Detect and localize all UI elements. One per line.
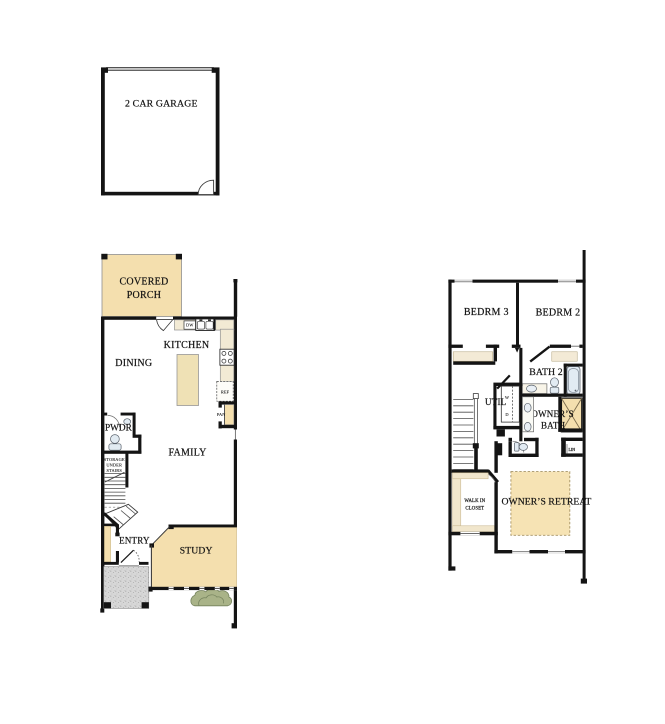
svg-text:OWNER’S: OWNER’S [531, 409, 573, 419]
svg-text:BATH: BATH [541, 420, 566, 430]
svg-text:FAMILY: FAMILY [168, 447, 206, 458]
svg-text:LIN: LIN [569, 448, 576, 452]
svg-text:KITCHEN: KITCHEN [164, 340, 210, 351]
svg-text:DW: DW [186, 323, 194, 328]
svg-text:D: D [505, 412, 508, 417]
svg-text:BEDRM 3: BEDRM 3 [464, 307, 509, 318]
svg-text:STUDY: STUDY [180, 546, 213, 557]
svg-text:WALK IN: WALK IN [464, 499, 485, 504]
svg-text:ENTRY: ENTRY [119, 536, 150, 546]
svg-text:REF: REF [221, 390, 230, 395]
svg-text:UNDER: UNDER [106, 463, 122, 468]
svg-text:OWNER’S RETREAT: OWNER’S RETREAT [501, 497, 591, 508]
svg-text:PWDR: PWDR [105, 424, 133, 434]
svg-text:UTIL: UTIL [485, 397, 506, 407]
svg-text:PAN: PAN [217, 412, 226, 417]
svg-text:BATH 2: BATH 2 [529, 367, 563, 378]
svg-text:PORCH: PORCH [127, 290, 162, 301]
svg-text:STAIRS: STAIRS [107, 468, 123, 473]
svg-text:COVERED: COVERED [120, 277, 169, 288]
svg-text:STORAGE: STORAGE [104, 457, 125, 462]
svg-text:2 CAR GARAGE: 2 CAR GARAGE [125, 98, 198, 109]
svg-text:DINING: DINING [115, 358, 152, 369]
svg-text:BEDRM 2: BEDRM 2 [536, 307, 581, 318]
svg-text:CLOSET: CLOSET [465, 507, 484, 512]
